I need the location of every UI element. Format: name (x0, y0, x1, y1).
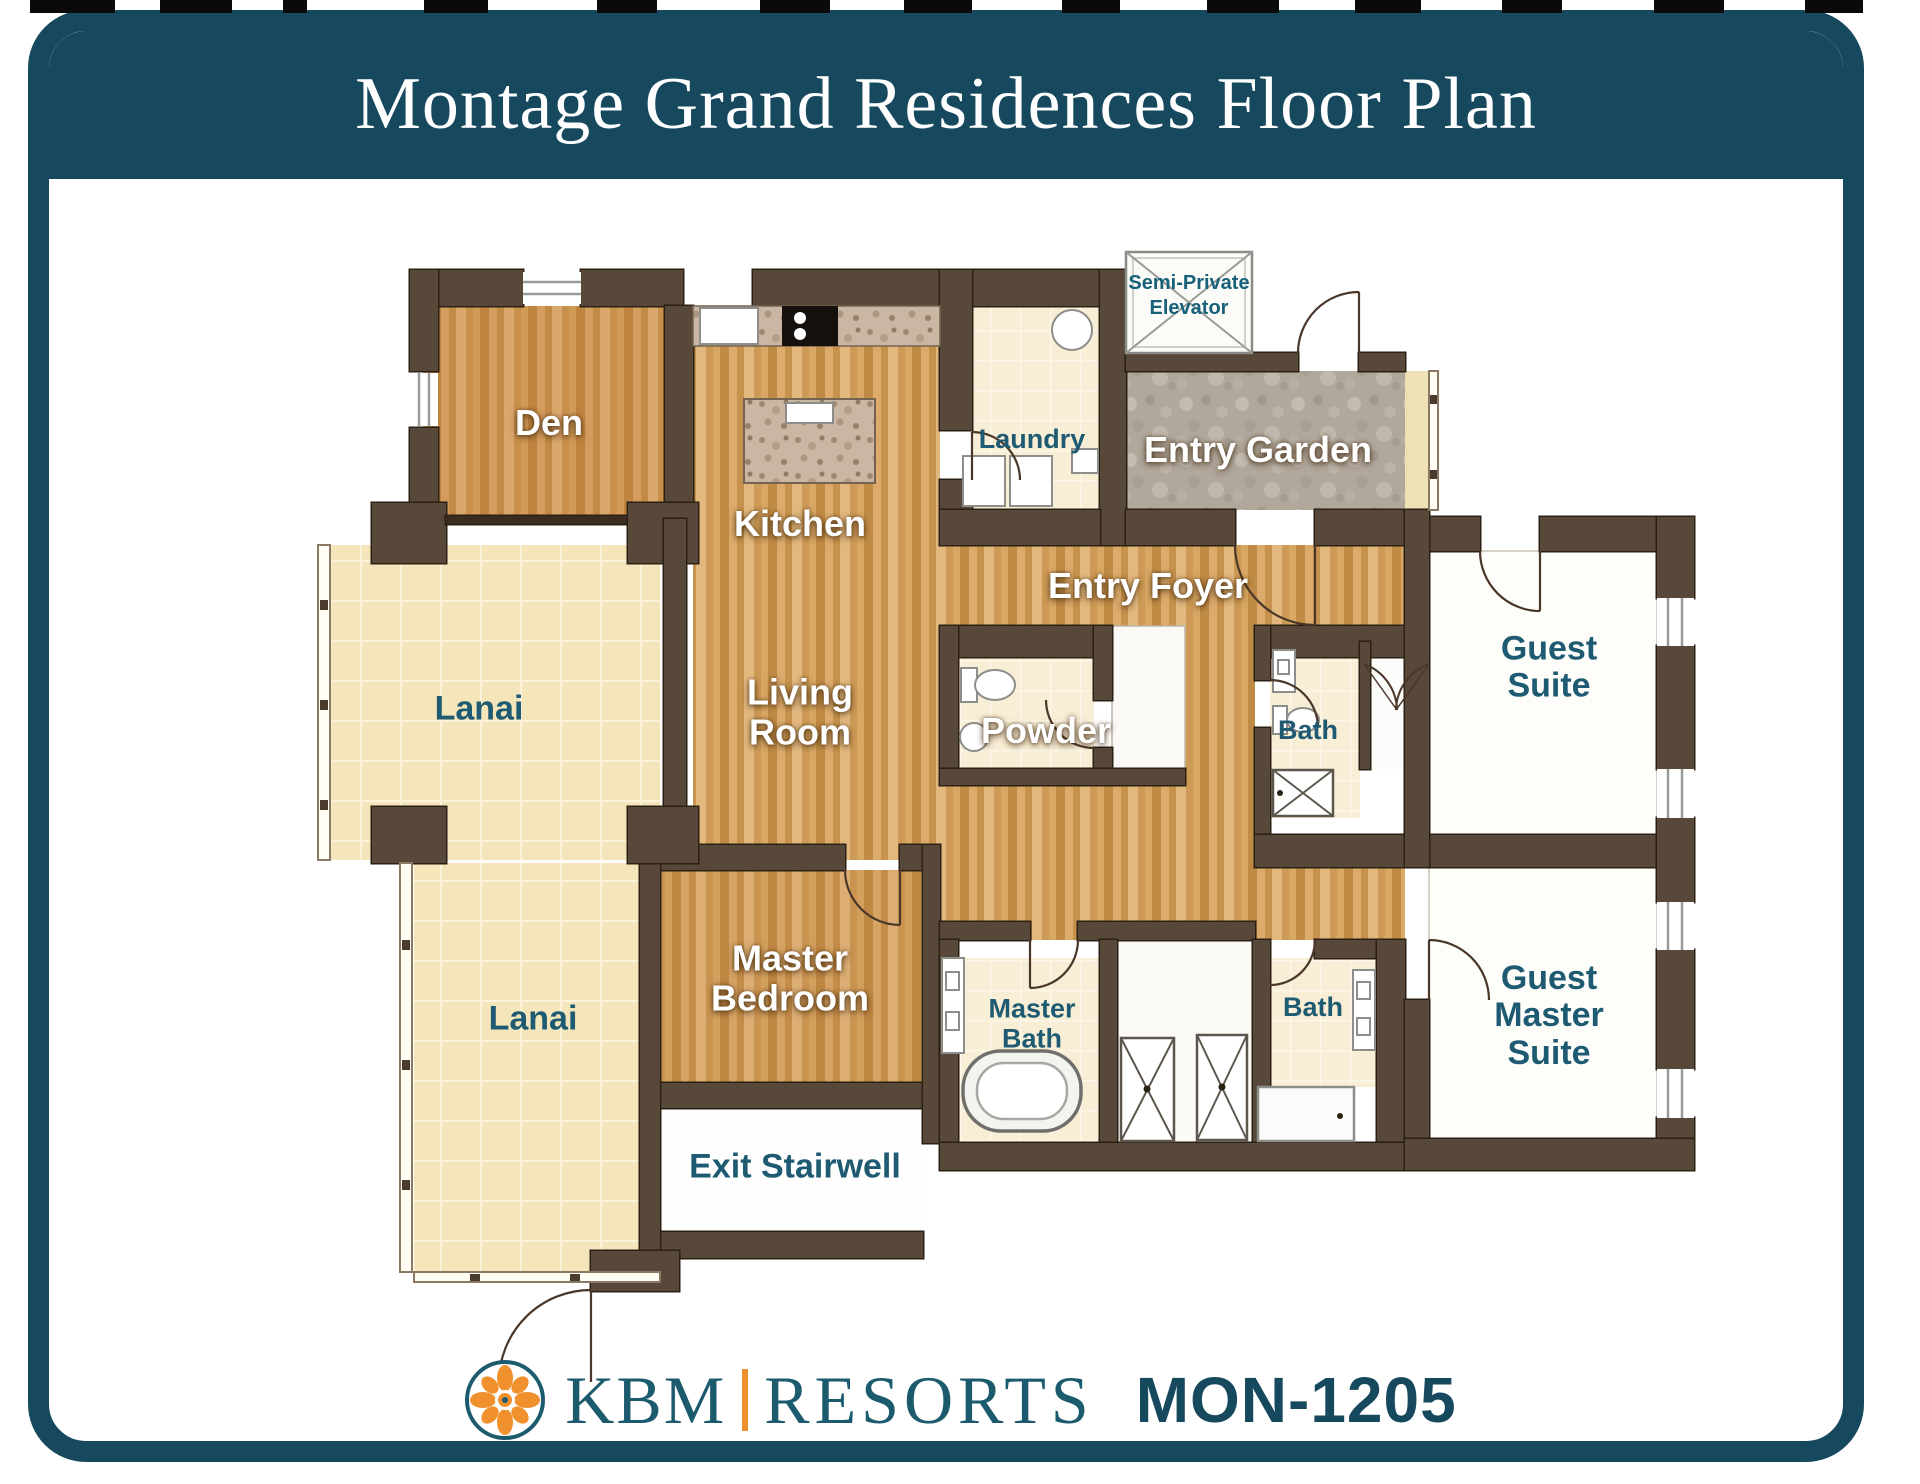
cooktop (782, 306, 838, 346)
corridor-floor (1185, 626, 1255, 940)
top-edge-marks (0, 0, 1920, 16)
room-label-master-bath: Master Bath (967, 994, 1097, 1053)
brand-kbm: KBM (565, 1366, 726, 1434)
room-label-laundry: Laundry (979, 425, 1086, 455)
window (1657, 902, 1694, 950)
room-label-entry-garden: Entry Garden (1144, 430, 1372, 470)
brand-resorts: RESORTS (764, 1366, 1093, 1434)
kitchen-sink (700, 308, 758, 344)
window (1657, 598, 1694, 646)
hall-floor (940, 769, 1185, 940)
laundry-sink (1052, 310, 1092, 350)
bathtub (963, 1051, 1081, 1131)
room-label-elevator: Semi-Private Elevator (1119, 271, 1259, 321)
room-label-guest-bath: Bath (1278, 716, 1338, 746)
floor-plan-graphic (0, 0, 1920, 1484)
room-label-guest-master-suite: Guest Master Suite (1464, 960, 1634, 1072)
page: { "header": { "title": "Montage Grand Re… (0, 0, 1920, 1484)
room-label-lanai-lower: Lanai (489, 1000, 578, 1037)
room-label-exit-stairwell: Exit Stairwell (689, 1148, 901, 1185)
powder-toilet (961, 668, 1015, 702)
garden-gate-door (1298, 292, 1359, 353)
footer-brand-row: KBM RESORTS MON-1205 (0, 1352, 1920, 1448)
room-label-lanai-upper: Lanai (435, 690, 524, 727)
washer (963, 456, 1005, 506)
guest-shower (1273, 770, 1333, 816)
room-label-guest-suite: Guest Suite (1474, 631, 1624, 706)
room-label-living-room: Living Room (725, 672, 875, 751)
shower-stall (1121, 1038, 1174, 1141)
foyer-closet (1112, 626, 1185, 769)
brand-divider (742, 1369, 748, 1431)
kbm-logo-icon (463, 1358, 547, 1442)
unit-code: MON-1205 (1136, 1368, 1457, 1432)
shower-stall (1197, 1035, 1247, 1140)
room-label-den: Den (515, 403, 583, 443)
window (523, 272, 581, 304)
kitchen-living-floor (693, 306, 940, 860)
room-label-entry-foyer: Entry Foyer (1048, 566, 1248, 606)
window (1657, 769, 1694, 818)
room-label-powder: Powder (981, 711, 1111, 751)
lanai-lower-floor (414, 863, 660, 1272)
guest-corridor-floor (1255, 867, 1405, 940)
room-label-master-bedroom: Master Bedroom (685, 938, 895, 1017)
room-label-bath2: Bath (1283, 993, 1343, 1023)
window (1657, 1069, 1694, 1118)
room-label-kitchen: Kitchen (734, 504, 866, 544)
window (410, 373, 438, 426)
